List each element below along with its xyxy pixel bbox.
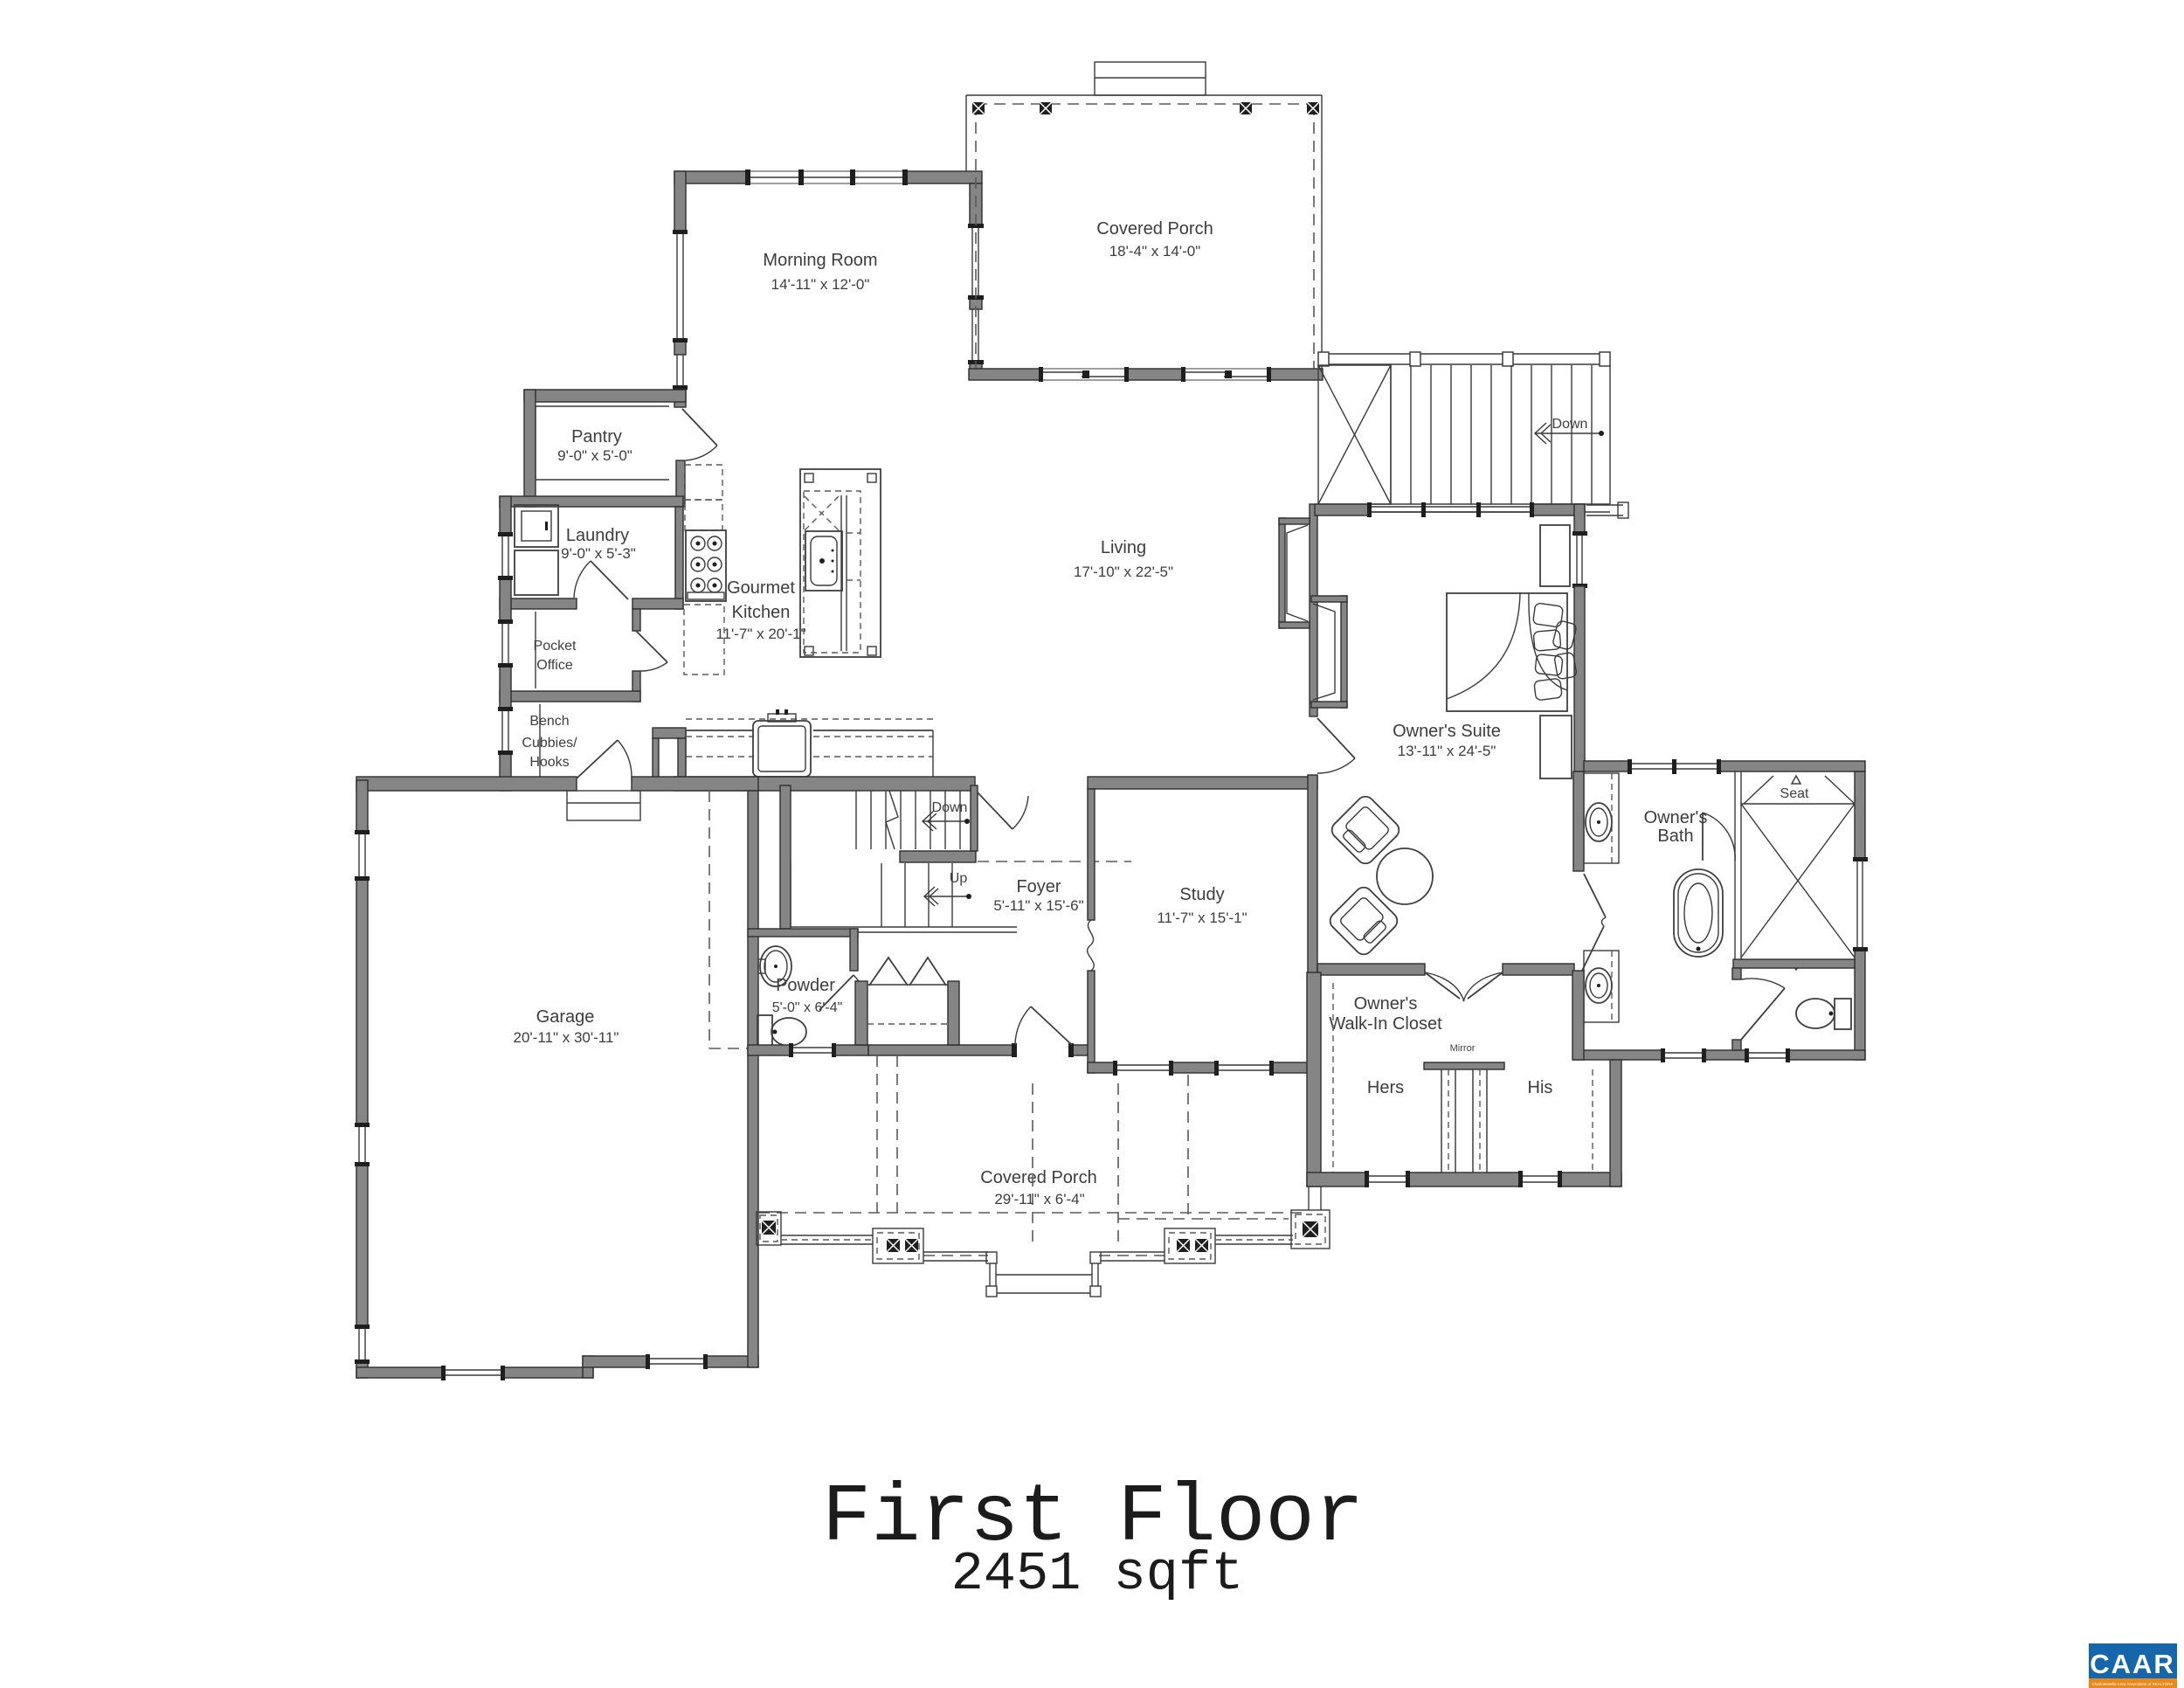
svg-text:Gourmet: Gourmet bbox=[727, 578, 795, 598]
svg-text:20'-11" x 30'-11": 20'-11" x 30'-11" bbox=[514, 1029, 619, 1046]
svg-text:Owner's: Owner's bbox=[1644, 808, 1708, 827]
svg-text:18'-4" x 14'-0": 18'-4" x 14'-0" bbox=[1109, 243, 1201, 259]
svg-text:Bench: Bench bbox=[529, 714, 569, 729]
svg-text:Pantry: Pantry bbox=[571, 427, 622, 446]
svg-text:11'-7" x 20'-1": 11'-7" x 20'-1" bbox=[715, 626, 805, 642]
svg-text:Powder: Powder bbox=[776, 976, 835, 995]
svg-text:Up: Up bbox=[950, 871, 968, 886]
svg-text:CAAR: CAAR bbox=[2090, 1649, 2175, 1679]
svg-text:Pocket: Pocket bbox=[534, 639, 577, 654]
svg-text:9'-0" x 5'-0": 9'-0" x 5'-0" bbox=[557, 447, 632, 464]
svg-text:Covered Porch: Covered Porch bbox=[980, 1168, 1096, 1187]
svg-text:14'-11" x 12'-0": 14'-11" x 12'-0" bbox=[771, 276, 870, 293]
svg-text:His: His bbox=[1528, 1078, 1553, 1097]
svg-text:5'-0" x 6'-4": 5'-0" x 6'-4" bbox=[772, 1000, 843, 1015]
svg-text:17'-10" x 22'-5": 17'-10" x 22'-5" bbox=[1074, 564, 1173, 580]
svg-text:Covered Porch: Covered Porch bbox=[1096, 219, 1213, 239]
svg-text:Mirror: Mirror bbox=[1450, 1043, 1476, 1054]
svg-text:5'-11" x 15'-6": 5'-11" x 15'-6" bbox=[993, 897, 1083, 914]
svg-text:11'-7" x 15'-1": 11'-7" x 15'-1" bbox=[1157, 910, 1247, 926]
svg-text:Garage: Garage bbox=[536, 1007, 595, 1027]
svg-text:Down: Down bbox=[932, 800, 968, 815]
svg-text:Charlottesville Area Associati: Charlottesville Area Association of REAL… bbox=[2092, 1682, 2174, 1686]
svg-text:Owner's Suite: Owner's Suite bbox=[1393, 722, 1501, 741]
svg-text:Office: Office bbox=[536, 658, 573, 673]
svg-text:Laundry: Laundry bbox=[566, 526, 629, 545]
svg-text:9'-0" x 5'-3": 9'-0" x 5'-3" bbox=[561, 545, 636, 562]
svg-text:Hooks: Hooks bbox=[529, 755, 569, 770]
svg-text:2451 sqft: 2451 sqft bbox=[951, 1543, 1244, 1605]
svg-text:Seat: Seat bbox=[1780, 786, 1809, 801]
svg-text:Walk-In Closet: Walk-In Closet bbox=[1329, 1014, 1442, 1034]
svg-text:Owner's: Owner's bbox=[1354, 994, 1418, 1013]
svg-text:29'-11" x 6'-4": 29'-11" x 6'-4" bbox=[994, 1191, 1084, 1207]
svg-text:Morning Room: Morning Room bbox=[763, 251, 877, 270]
svg-text:Study: Study bbox=[1179, 885, 1224, 904]
svg-text:Foyer: Foyer bbox=[1016, 877, 1061, 896]
svg-text:Living: Living bbox=[1101, 538, 1146, 557]
svg-text:Cubbies/: Cubbies/ bbox=[522, 736, 577, 751]
svg-text:Down: Down bbox=[1552, 417, 1588, 432]
svg-text:Kitchen: Kitchen bbox=[732, 603, 791, 622]
svg-text:Hers: Hers bbox=[1367, 1078, 1404, 1097]
svg-text:13'-11" x 24'-5": 13'-11" x 24'-5" bbox=[1398, 743, 1496, 759]
svg-text:Bath: Bath bbox=[1657, 827, 1693, 846]
